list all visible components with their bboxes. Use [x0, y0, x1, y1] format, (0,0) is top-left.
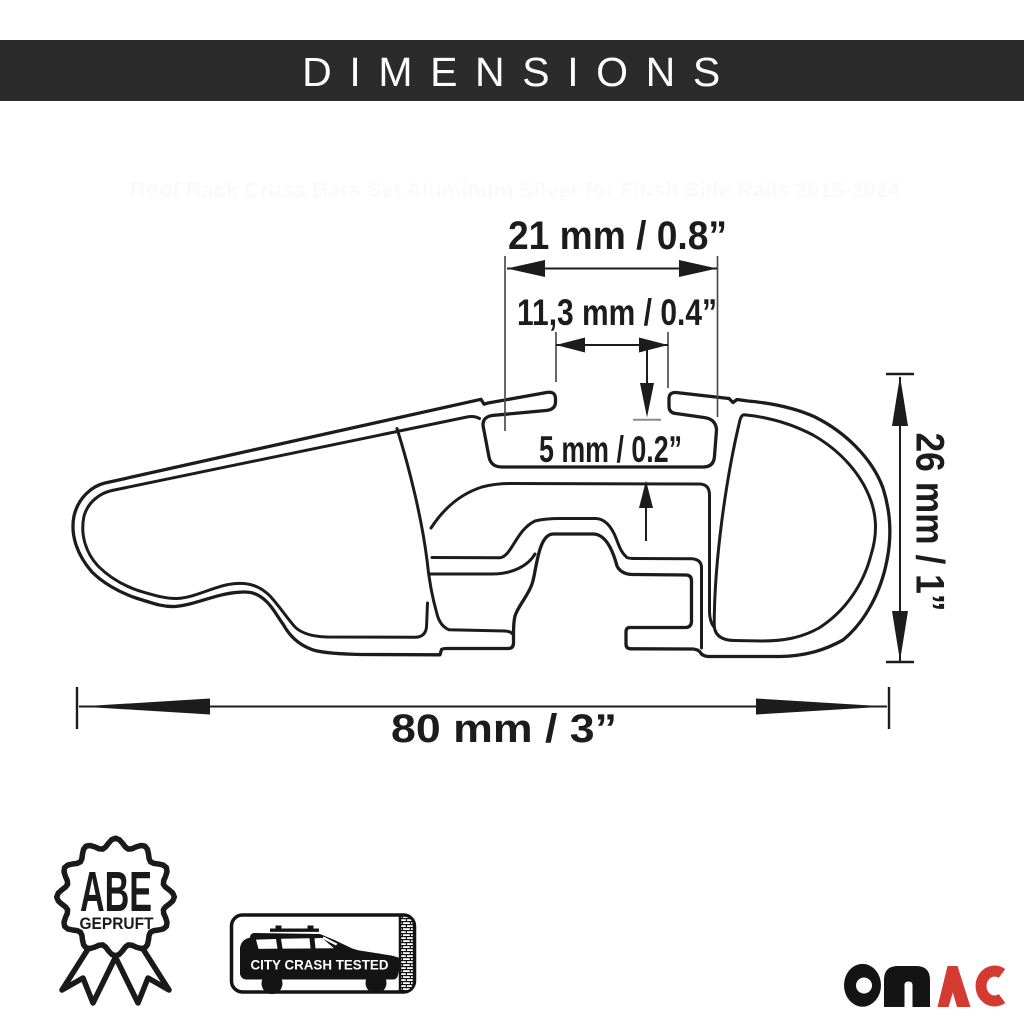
svg-text:21 mm / 0.8”: 21 mm / 0.8”	[508, 214, 727, 258]
svg-text:5 mm / 0.2”: 5 mm / 0.2”	[539, 429, 682, 470]
svg-text:Roof Rack Cross Bars Set Alumi: Roof Rack Cross Bars Set Aluminum Silver…	[130, 179, 900, 202]
svg-text:DIMENSIONS: DIMENSIONS	[302, 49, 738, 95]
svg-text:CITY CRASH TESTED: CITY CRASH TESTED	[251, 957, 389, 973]
svg-text:GEPRUFT: GEPRUFT	[80, 914, 155, 933]
svg-text:11,3 mm / 0.4”: 11,3 mm / 0.4”	[517, 292, 717, 333]
svg-text:26 mm / 1”: 26 mm / 1”	[907, 433, 951, 612]
svg-text:80 mm / 3”: 80 mm / 3”	[391, 707, 617, 751]
